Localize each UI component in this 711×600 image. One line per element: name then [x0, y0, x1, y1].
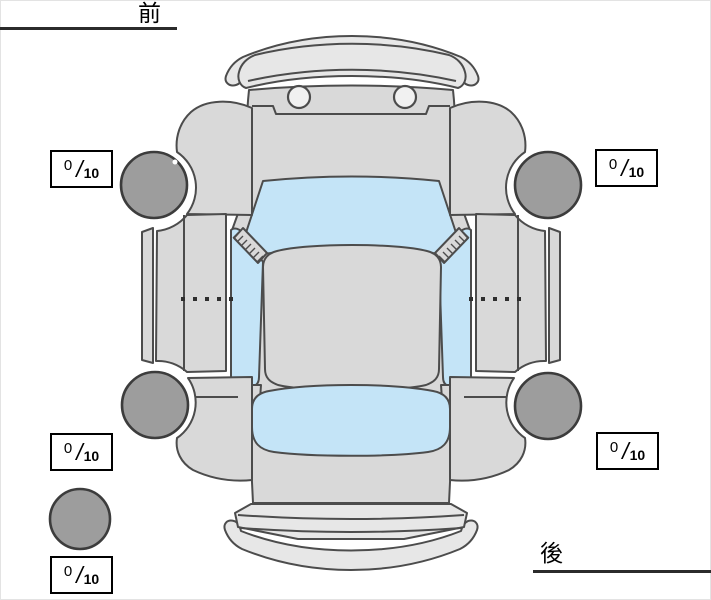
score-value: 0 — [609, 156, 617, 173]
tire-glint — [173, 160, 178, 165]
trunk-lower-bands — [235, 504, 467, 539]
score-box-rear-right: 0 / 10 — [596, 432, 659, 470]
car-top-view — [0, 0, 711, 600]
tire-rear-left — [122, 372, 188, 438]
headlamp-washer-right — [394, 86, 416, 108]
score-denominator: 10 — [84, 448, 100, 464]
headlamp-washer-left — [288, 86, 310, 108]
fender-rear-right — [450, 377, 525, 481]
vehicle-condition-diagram: 前 後 0 / 10 0 / 10 0 / 10 0 / 10 0 / 10 — [0, 0, 711, 600]
roof-panel — [263, 245, 441, 390]
score-slash: / — [76, 156, 82, 183]
score-slash: / — [621, 155, 627, 182]
score-denominator: 10 — [630, 447, 646, 463]
fender-rear-left — [177, 377, 252, 481]
score-slash: / — [76, 439, 82, 466]
tire-front-right — [515, 152, 581, 218]
tire-rear-right — [515, 373, 581, 439]
fender-front-left — [177, 102, 252, 215]
score-value: 0 — [610, 439, 618, 456]
score-value: 0 — [64, 440, 72, 457]
score-slash: / — [622, 438, 628, 465]
score-denominator: 10 — [84, 571, 100, 587]
spare-tire — [50, 489, 110, 549]
front-bumper — [238, 44, 465, 88]
rocker-panel-right — [549, 228, 560, 363]
score-box-rear-left: 0 / 10 — [50, 433, 113, 471]
score-value: 0 — [64, 563, 72, 580]
door-right — [476, 214, 546, 372]
score-denominator: 10 — [629, 164, 645, 180]
fender-front-right — [450, 102, 525, 215]
score-box-spare: 0 / 10 — [50, 556, 113, 594]
score-denominator: 10 — [84, 165, 100, 181]
rear-window — [252, 385, 450, 456]
front-underline — [0, 27, 177, 30]
door-left — [156, 214, 226, 372]
score-box-front-right: 0 / 10 — [595, 149, 658, 187]
score-box-front-left: 0 / 10 — [50, 150, 113, 188]
rear-underline — [533, 570, 711, 573]
score-slash: / — [76, 562, 82, 589]
score-value: 0 — [64, 157, 72, 174]
rocker-panel-left — [142, 228, 153, 363]
rear-label: 後 — [540, 542, 563, 565]
front-label: 前 — [138, 2, 161, 25]
